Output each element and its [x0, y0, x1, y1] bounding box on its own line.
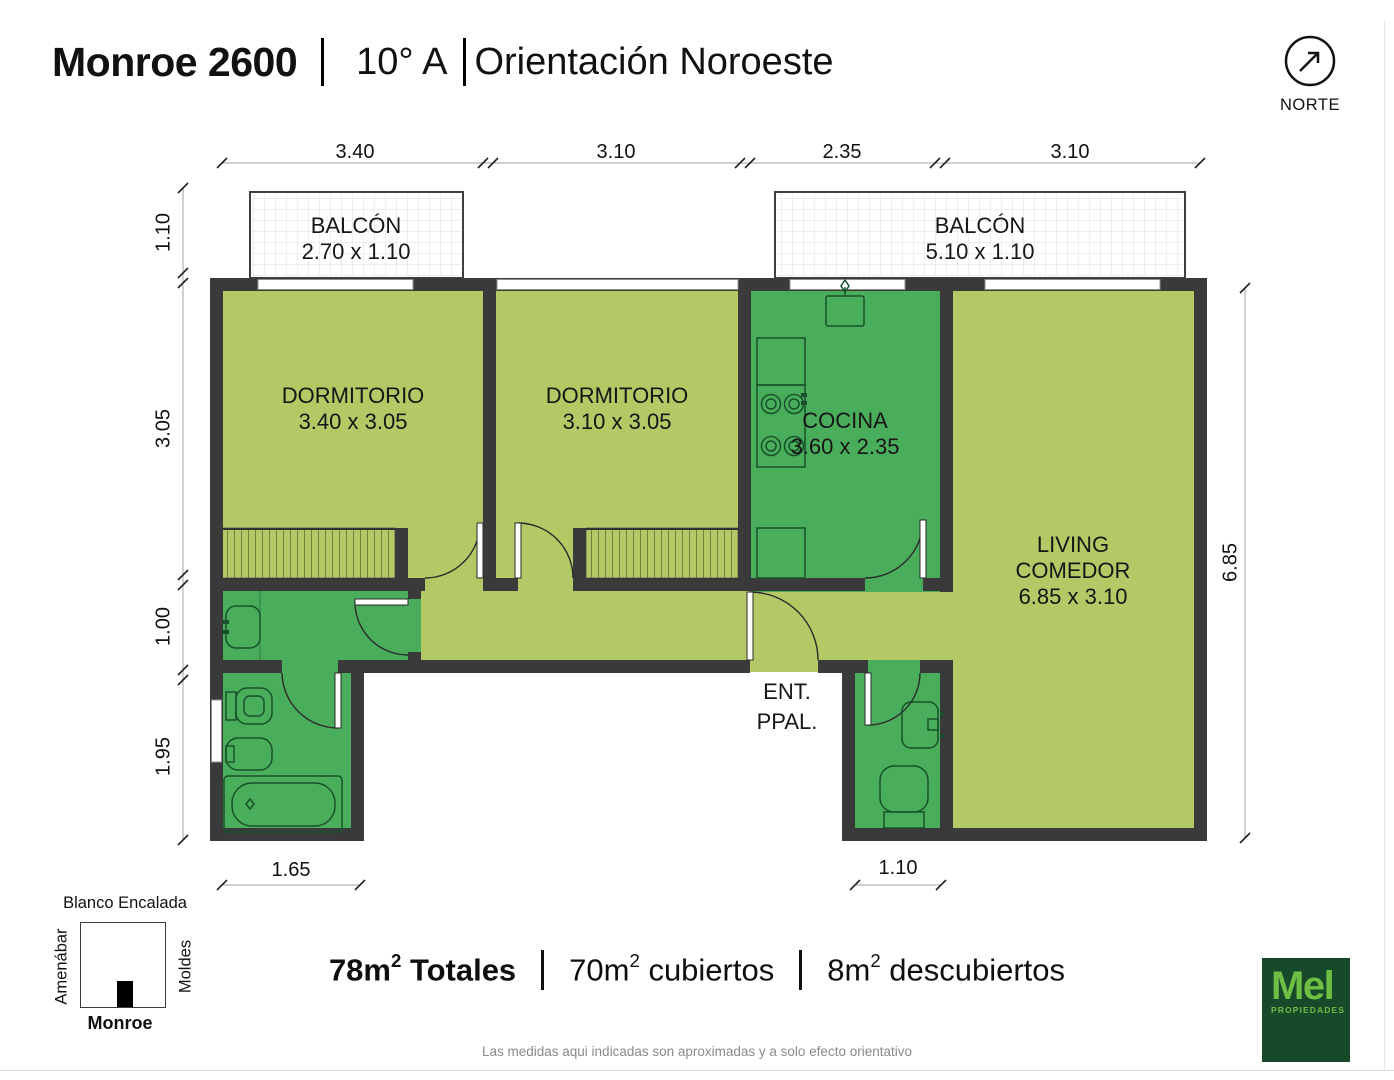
room-name: BALCÓN: [880, 213, 1080, 239]
street-north: Blanco Encalada: [30, 894, 220, 913]
dim-left-1: 1.10: [153, 193, 176, 273]
room-label-cocina: COCINA 3.60 x 2.35: [745, 408, 945, 460]
room-name: LIVING: [973, 532, 1173, 558]
floorplan-page: Monroe 2600 10° A Orientación Noroeste N…: [0, 0, 1394, 1080]
summary-separator: [799, 950, 802, 990]
summary-separator: [541, 950, 544, 990]
dim-top-1: 3.40: [315, 141, 395, 164]
orientation-label: Orientación Noroeste: [474, 41, 833, 84]
floor-plan-drawing: [0, 0, 1394, 1080]
room-name: PPAL.: [737, 707, 837, 737]
room-label-dormitorio-1: DORMITORIO 3.40 x 3.05: [253, 383, 453, 435]
area-value: 78m: [329, 952, 391, 987]
area-sup: 2: [870, 950, 880, 971]
room-name: BALCÓN: [256, 213, 456, 239]
uncovered-area: 8m2 descubiertos: [827, 952, 1065, 988]
north-label: NORTE: [1278, 96, 1342, 115]
dim-left-2: 3.05: [153, 389, 176, 469]
room-name: DORMITORIO: [253, 383, 453, 409]
room-size: 3.60 x 2.35: [745, 434, 945, 460]
area-label: Totales: [401, 952, 516, 987]
dim-top-2: 3.10: [576, 141, 656, 164]
title-separator: [463, 38, 466, 86]
bottom-divider: [0, 1070, 1394, 1071]
agency-logo: Mel PROPIEDADES: [1262, 958, 1350, 1062]
area-label: descubiertos: [881, 952, 1065, 987]
north-indicator: NORTE: [1278, 34, 1342, 115]
logo-subtitle: PROPIEDADES: [1271, 1005, 1350, 1015]
right-divider: [1384, 20, 1385, 1070]
dim-left-3: 1.00: [153, 587, 176, 667]
area-value: 8m: [827, 952, 870, 987]
room-label-living: LIVING COMEDOR 6.85 x 3.10: [973, 532, 1173, 610]
room-size: 2.70 x 1.10: [256, 239, 456, 265]
room-size: 6.85 x 3.10: [973, 584, 1173, 610]
room-size: 5.10 x 1.10: [880, 239, 1080, 265]
dim-right-1: 6.85: [1220, 523, 1243, 603]
disclaimer-text: Las medidas aqui indicadas son aproximad…: [0, 1044, 1394, 1059]
area-sup: 2: [629, 950, 639, 971]
dim-bottom-right: 1.10: [858, 857, 938, 880]
area-summary: 78m2 Totales 70m2 cubiertos 8m2 descubie…: [0, 950, 1394, 990]
room-name: COCINA: [745, 408, 945, 434]
north-arrow-icon: [1283, 34, 1337, 88]
room-size: 3.10 x 3.05: [517, 409, 717, 435]
building-name: Monroe 2600: [52, 39, 297, 86]
dim-top-3: 2.35: [802, 141, 882, 164]
dim-bottom-left: 1.65: [251, 859, 331, 882]
covered-area: 70m2 cubiertos: [569, 952, 774, 988]
title-separator: [321, 38, 324, 86]
total-area: 78m2 Totales: [329, 952, 516, 988]
area-sup: 2: [391, 950, 401, 971]
room-label-entrada: ENT. PPAL.: [737, 677, 837, 737]
room-name: ENT.: [737, 677, 837, 707]
room-name: DORMITORIO: [517, 383, 717, 409]
street-south: Monroe: [60, 1013, 180, 1034]
dim-top-4: 3.10: [1030, 141, 1110, 164]
room-label-balcon-2: BALCÓN 5.10 x 1.10: [880, 213, 1080, 265]
dim-left-4: 1.95: [153, 717, 176, 797]
area-value: 70m: [569, 952, 629, 987]
room-size: 3.40 x 3.05: [253, 409, 453, 435]
unit-label: 10° A: [356, 41, 447, 84]
room-name: COMEDOR: [973, 558, 1173, 584]
area-label: cubiertos: [640, 952, 774, 987]
room-label-dormitorio-2: DORMITORIO 3.10 x 3.05: [517, 383, 717, 435]
page-title: Monroe 2600 10° A Orientación Noroeste: [52, 38, 834, 86]
logo-brand: Mel: [1271, 968, 1350, 1004]
room-label-balcon-1: BALCÓN 2.70 x 1.10: [256, 213, 456, 265]
